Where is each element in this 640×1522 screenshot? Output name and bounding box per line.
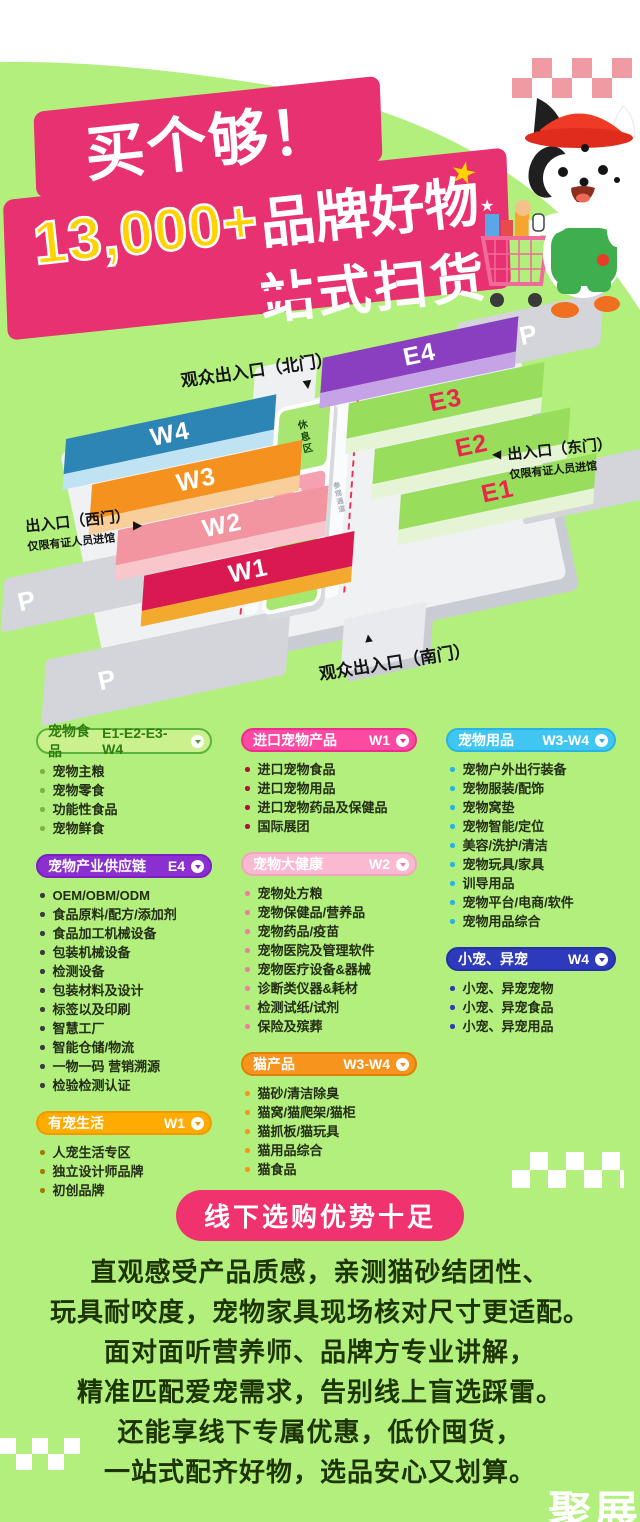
list-item: 宠物玩具/家具 — [450, 855, 628, 874]
list-item: 猫抓板/猫玩具 — [245, 1122, 446, 1141]
section-header-pet-supplies[interactable]: 宠物用品W3-W4 — [446, 728, 616, 752]
section-hall-code: W3-W4 — [343, 1056, 390, 1072]
arrow-down-icon: ▼ — [299, 375, 316, 394]
benefit-line: 一站式配齐好物，选品安心又划算。 — [0, 1452, 640, 1492]
list-item: 宠物处方粮 — [245, 884, 446, 903]
benefit-line: 精准匹配爱宠需求，告别线上盲选踩雷。 — [0, 1372, 640, 1412]
section-title: 猫产品 — [253, 1054, 295, 1074]
hall-label: E4 — [400, 337, 438, 372]
list-item: 食品原料/配方/添加剂 — [40, 905, 241, 924]
section-header-right: W1 — [164, 1115, 204, 1131]
list-item: 猫用品综合 — [245, 1141, 446, 1160]
section-items: 猫砂/清洁除臭猫窝/猫爬架/猫柜猫抓板/猫玩具猫用品综合猫食品 — [241, 1084, 446, 1179]
list-item: 宠物主粮 — [40, 762, 241, 781]
checker-decoration-bottom-left — [0, 1438, 80, 1470]
section-header-supply-chain[interactable]: 宠物产业供应链E4 — [36, 854, 212, 878]
arrow-left-icon: ◀ — [492, 447, 501, 461]
section-hall-code: E1-E2-E3-W4 — [102, 725, 185, 757]
list-item: 宠物平台/电商/软件 — [450, 893, 628, 912]
section-header-right: W4 — [568, 951, 608, 967]
list-item: 宠物智能/定位 — [450, 817, 628, 836]
category-section-pet-food: 宠物食品E1-E2-E3-W4宠物主粮宠物零食功能性食品宠物鲜食 — [36, 728, 241, 838]
list-item: 美容/洗护/清洁 — [450, 836, 628, 855]
section-title: 宠物大健康 — [253, 854, 323, 874]
section-items: OEM/OBM/ODM食品原料/配方/添加剂食品加工机械设备包装机械设备检测设备… — [36, 886, 241, 1095]
category-section-cat-products: 猫产品W3-W4猫砂/清洁除臭猫窝/猫爬架/猫柜猫抓板/猫玩具猫用品综合猫食品 — [241, 1052, 446, 1179]
corridor-label: 参观通道 — [330, 481, 346, 514]
category-column-2: 进口宠物产品W1进口宠物食品进口宠物用品进口宠物药品及保健品国际展团宠物大健康W… — [241, 728, 446, 1216]
hall-label: W3 — [174, 462, 219, 499]
section-title: 小宠、异宠 — [458, 949, 528, 969]
hall-label: E3 — [426, 383, 464, 418]
section-header-right: W3-W4 — [542, 732, 608, 748]
section-items: 小宠、异宠宠物小宠、异宠食品小宠、异宠用品 — [446, 979, 628, 1036]
section-hall-code: W1 — [369, 732, 390, 748]
benefits-badge-wrap: 线下选购优势十足 — [0, 1190, 640, 1241]
category-column-1: 宠物食品E1-E2-E3-W4宠物主粮宠物零食功能性食品宠物鲜食宠物产业供应链E… — [36, 728, 241, 1216]
category-section-supply-chain: 宠物产业供应链E4OEM/OBM/ODM食品原料/配方/添加剂食品加工机械设备包… — [36, 854, 241, 1095]
list-item: 智能仓储/物流 — [40, 1038, 241, 1057]
benefit-line: 直观感受产品质感，亲测猫砂结团性、 — [0, 1252, 640, 1292]
mascot-dog-illustration — [465, 88, 640, 318]
list-item: 猫食品 — [245, 1160, 446, 1179]
hall-label: W1 — [226, 553, 271, 590]
benefit-line: 玩具耐咬度，宠物家具现场核对尺寸更适配。 — [0, 1292, 640, 1332]
section-title: 进口宠物产品 — [253, 730, 337, 750]
list-item: 独立设计师品牌 — [40, 1162, 241, 1181]
list-item: 标签以及印刷 — [40, 1000, 241, 1019]
list-item: 宠物用品综合 — [450, 912, 628, 931]
section-hall-code: E4 — [168, 858, 185, 874]
section-header-right: W1 — [369, 732, 409, 748]
benefit-line: 还能享线下专属优惠，低价囤货， — [0, 1412, 640, 1452]
section-title: 有宠生活 — [48, 1113, 104, 1133]
watermark-logo: 聚展 — [548, 1476, 640, 1522]
arrow-right-icon: ▶ — [133, 518, 142, 532]
section-header-right: E4 — [168, 858, 204, 874]
list-item: 小宠、异宠用品 — [450, 1017, 628, 1036]
section-header-right: W2 — [369, 856, 409, 872]
chevron-down-icon — [396, 734, 409, 747]
category-columns: 宠物食品E1-E2-E3-W4宠物主粮宠物零食功能性食品宠物鲜食宠物产业供应链E… — [36, 728, 628, 1216]
chevron-down-icon — [396, 858, 409, 871]
list-item: 训导用品 — [450, 874, 628, 893]
section-title: 宠物食品 — [48, 721, 102, 761]
list-item: 诊断类仪器&耗材 — [245, 979, 446, 998]
section-header-pet-food[interactable]: 宠物食品E1-E2-E3-W4 — [36, 728, 212, 754]
category-section-pet-supplies: 宠物用品W3-W4宠物户外出行装备宠物服装/配饰宠物窝垫宠物智能/定位美容/洗护… — [446, 728, 628, 931]
category-section-imported: 进口宠物产品W1进口宠物食品进口宠物用品进口宠物药品及保健品国际展团 — [241, 728, 446, 836]
section-title: 宠物用品 — [458, 730, 514, 750]
section-header-right: E1-E2-E3-W4 — [102, 725, 204, 757]
chevron-down-icon — [191, 860, 204, 873]
parking-label: P — [0, 580, 54, 621]
list-item: 包装材料及设计 — [40, 981, 241, 1000]
benefit-line: 面对面听营养师、品牌方专业讲解， — [0, 1332, 640, 1372]
category-section-pet-life: 有宠生活W1人宠生活专区独立设计师品牌初创品牌 — [36, 1111, 241, 1200]
list-item: 人宠生活专区 — [40, 1143, 241, 1162]
list-item: 宠物鲜食 — [40, 819, 241, 838]
category-column-3: 宠物用品W3-W4宠物户外出行装备宠物服装/配饰宠物窝垫宠物智能/定位美容/洗护… — [446, 728, 628, 1216]
parking-label: P — [40, 659, 134, 708]
checker-decoration-right — [512, 1152, 624, 1188]
section-items: 宠物处方粮宠物保健品/营养品宠物药品/疫苗宠物医院及管理软件宠物医疗设备&器械诊… — [241, 884, 446, 1036]
list-item: 宠物窝垫 — [450, 798, 628, 817]
list-item: 小宠、异宠食品 — [450, 998, 628, 1017]
list-item: 猫窝/猫爬架/猫柜 — [245, 1103, 446, 1122]
hall-label: W2 — [200, 507, 245, 544]
venue-map: P P P P 参观通道 参观通道 休息区 餐饮区 休息区 W4W3W2W1E4… — [0, 350, 640, 690]
list-item: 包装机械设备 — [40, 943, 241, 962]
hall-label: W4 — [148, 416, 193, 453]
hall-label: E2 — [453, 428, 491, 463]
arrow-up-icon: ▲ — [361, 629, 376, 646]
list-item: 智慧工厂 — [40, 1019, 241, 1038]
section-items: 宠物户外出行装备宠物服装/配饰宠物窝垫宠物智能/定位美容/洗护/清洁宠物玩具/家… — [446, 760, 628, 931]
chevron-down-icon — [595, 734, 608, 747]
list-item: 宠物医疗设备&器械 — [245, 960, 446, 979]
list-item: 保险及殡葬 — [245, 1017, 446, 1036]
chevron-down-icon — [191, 735, 204, 748]
list-item: 检测试纸/试剂 — [245, 998, 446, 1017]
section-header-pet-life[interactable]: 有宠生活W1 — [36, 1111, 212, 1135]
category-section-small-exotic-pets: 小宠、异宠W4小宠、异宠宠物小宠、异宠食品小宠、异宠用品 — [446, 947, 628, 1036]
list-item: 检验检测认证 — [40, 1076, 241, 1095]
section-hall-code: W4 — [568, 951, 589, 967]
list-item: 猫砂/清洁除臭 — [245, 1084, 446, 1103]
list-item: 国际展团 — [245, 817, 446, 836]
section-header-right: W3-W4 — [343, 1056, 409, 1072]
list-item: 宠物医院及管理软件 — [245, 941, 446, 960]
chevron-down-icon — [595, 953, 608, 966]
chevron-down-icon — [396, 1058, 409, 1071]
list-item: 宠物零食 — [40, 781, 241, 800]
chevron-down-icon — [191, 1117, 204, 1130]
poster: 买个够！ 13,000+ 品牌好物 一站式扫货 ★ ★ — [0, 0, 640, 1522]
section-hall-code: W1 — [164, 1115, 185, 1131]
list-item: 宠物保健品/营养品 — [245, 903, 446, 922]
section-items: 宠物主粮宠物零食功能性食品宠物鲜食 — [36, 762, 241, 838]
list-item: 一物一码 营销溯源 — [40, 1057, 241, 1076]
section-items: 进口宠物食品进口宠物用品进口宠物药品及保健品国际展团 — [241, 760, 446, 836]
list-item: 进口宠物食品 — [245, 760, 446, 779]
list-item: 功能性食品 — [40, 800, 241, 819]
list-item: 宠物服装/配饰 — [450, 779, 628, 798]
list-item: 食品加工机械设备 — [40, 924, 241, 943]
list-item: 进口宠物药品及保健品 — [245, 798, 446, 817]
section-hall-code: W3-W4 — [542, 732, 589, 748]
list-item: OEM/OBM/ODM — [40, 886, 241, 905]
section-header-imported[interactable]: 进口宠物产品W1 — [241, 728, 417, 752]
section-header-health[interactable]: 宠物大健康W2 — [241, 852, 417, 876]
list-item: 检测设备 — [40, 962, 241, 981]
section-header-cat-products[interactable]: 猫产品W3-W4 — [241, 1052, 417, 1076]
benefits-badge: 线下选购优势十足 — [176, 1190, 464, 1241]
benefits-text: 直观感受产品质感，亲测猫砂结团性、玩具耐咬度，宠物家具现场核对尺寸更适配。面对面… — [0, 1252, 640, 1492]
list-item: 小宠、异宠宠物 — [450, 979, 628, 998]
section-hall-code: W2 — [369, 856, 390, 872]
section-title: 宠物产业供应链 — [48, 856, 146, 876]
list-item: 宠物药品/疫苗 — [245, 922, 446, 941]
section-header-small-exotic-pets[interactable]: 小宠、异宠W4 — [446, 947, 616, 971]
list-item: 进口宠物用品 — [245, 779, 446, 798]
category-section-health: 宠物大健康W2宠物处方粮宠物保健品/营养品宠物药品/疫苗宠物医院及管理软件宠物医… — [241, 852, 446, 1036]
list-item: 宠物户外出行装备 — [450, 760, 628, 779]
